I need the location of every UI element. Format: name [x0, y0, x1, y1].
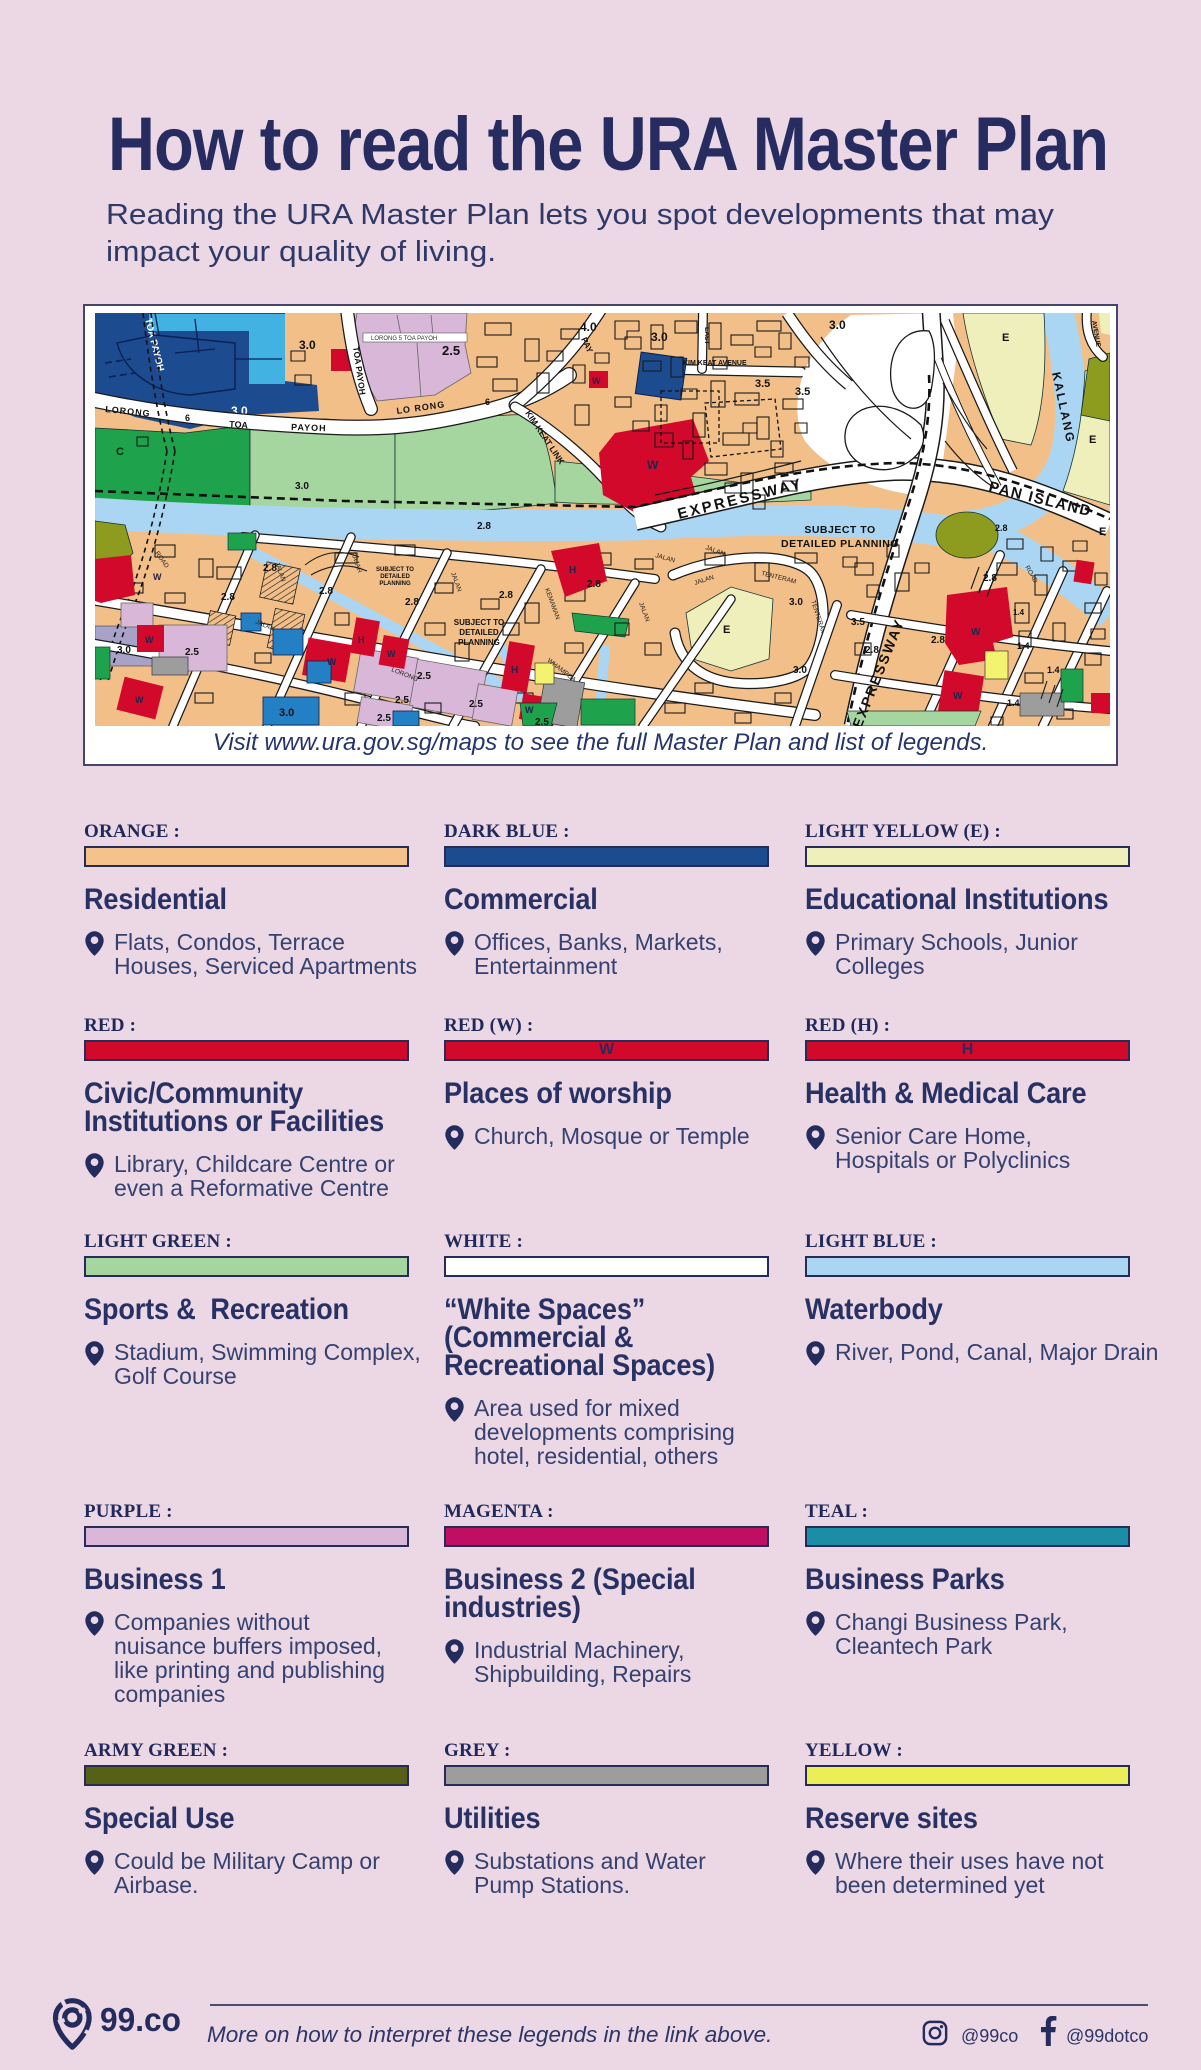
svg-text:W: W [327, 657, 337, 668]
svg-text:2.5: 2.5 [535, 717, 549, 726]
svg-text:99.co: 99.co [100, 2001, 181, 2038]
svg-text:2.8: 2.8 [477, 521, 491, 532]
svg-text:2.5: 2.5 [442, 343, 460, 358]
svg-text:3.5: 3.5 [795, 386, 810, 398]
svg-text:6: 6 [185, 413, 190, 423]
svg-text:3.0: 3.0 [789, 597, 803, 608]
svg-text:2.5: 2.5 [395, 695, 409, 706]
svg-text:2.5: 2.5 [377, 713, 391, 724]
svg-text:W: W [145, 635, 154, 645]
svg-text:E: E [1099, 526, 1106, 538]
svg-text:2.8: 2.8 [931, 635, 945, 646]
svg-text:4.0: 4.0 [580, 320, 597, 334]
svg-text:LORONG 5 TOA PAYOH: LORONG 5 TOA PAYOH [371, 336, 437, 342]
svg-text:1.4: 1.4 [1013, 608, 1025, 617]
svg-text:SUBJECT TO: SUBJECT TO [376, 567, 414, 573]
svg-text:W: W [387, 649, 396, 659]
svg-text:SUBJECT TO: SUBJECT TO [804, 524, 875, 536]
svg-text:W: W [953, 691, 963, 702]
svg-text:W: W [153, 572, 162, 582]
svg-text:H: H [358, 635, 365, 645]
svg-text:1.4: 1.4 [1047, 665, 1060, 675]
svg-text:KIM KEAT AVENUE: KIM KEAT AVENUE [683, 360, 747, 367]
svg-text:3.5: 3.5 [851, 617, 865, 628]
svg-text:2.8: 2.8 [405, 597, 419, 608]
svg-text:2.8: 2.8 [995, 523, 1008, 533]
svg-text:3.0: 3.0 [829, 318, 846, 332]
svg-text:2.5: 2.5 [469, 699, 483, 710]
svg-text:TOA: TOA [229, 419, 249, 430]
svg-text:W: W [525, 705, 534, 715]
svg-text:E: E [1002, 332, 1009, 344]
svg-text:3.0: 3.0 [299, 338, 316, 352]
svg-text:W: W [647, 458, 659, 472]
svg-text:PLANNING: PLANNING [458, 638, 500, 647]
svg-text:2.8: 2.8 [319, 586, 333, 597]
svg-text:2.8: 2.8 [865, 645, 879, 656]
svg-text:E: E [1089, 434, 1096, 446]
svg-text:1.4: 1.4 [1017, 641, 1030, 651]
svg-text:DETAILED: DETAILED [380, 574, 410, 580]
svg-text:W: W [971, 627, 981, 638]
svg-text:1.4: 1.4 [1007, 698, 1020, 708]
svg-text:H: H [569, 565, 576, 576]
svg-text:3.0: 3.0 [279, 707, 294, 719]
svg-text:3.0: 3.0 [295, 481, 309, 492]
svg-text:2.8: 2.8 [587, 579, 601, 590]
svg-text:W: W [592, 376, 601, 386]
svg-text:3.0: 3.0 [793, 665, 807, 676]
svg-text:3.0: 3.0 [651, 330, 668, 344]
svg-text:2.5: 2.5 [185, 647, 199, 658]
svg-text:SUBJECT TO: SUBJECT TO [454, 618, 505, 627]
svg-text:2.8: 2.8 [499, 590, 513, 601]
svg-text:DETAILED PLANNING: DETAILED PLANNING [781, 538, 899, 550]
svg-text:PLANNING: PLANNING [379, 581, 411, 587]
svg-text:C: C [116, 446, 124, 458]
svg-text:DETAILED: DETAILED [459, 628, 499, 637]
svg-text:3.0: 3.0 [117, 645, 131, 656]
svg-text:EAST: EAST [703, 327, 710, 344]
svg-text:2.8: 2.8 [221, 592, 235, 603]
svg-text:E: E [723, 624, 730, 636]
svg-text:6: 6 [485, 397, 490, 407]
svg-text:H: H [511, 665, 518, 676]
svg-text:PAYOH: PAYOH [291, 422, 327, 433]
svg-text:W: W [135, 695, 144, 705]
svg-text:3.5: 3.5 [755, 378, 770, 390]
